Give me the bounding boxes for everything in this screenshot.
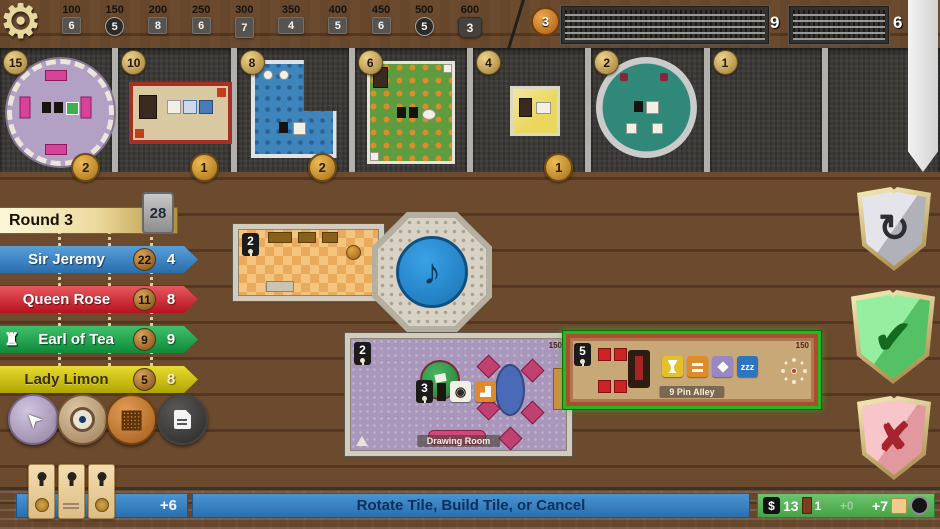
money-coin: 9 [133, 328, 156, 351]
keyhole-icon [248, 249, 253, 254]
market-slot-3[interactable]: 8 2 [237, 48, 349, 172]
bonus-coin: 2 [71, 153, 100, 182]
entrance-arrow [356, 436, 368, 446]
checkmark-icon: ✔ [856, 295, 930, 379]
room-marker: 2 [242, 233, 259, 256]
price-coin: 8 [240, 50, 265, 75]
utility-bonus-icon [475, 381, 496, 402]
view-token-button[interactable] [57, 394, 108, 445]
bowling-pin [614, 348, 627, 361]
chain-link [150, 313, 153, 326]
room-decor [279, 122, 288, 133]
milestone-score: 450 [372, 4, 390, 16]
score-milestone-bar: ⚙ 1006 1505 2008 2506 3007 3504 4005 450… [0, 0, 940, 50]
sleep-bonus-icon: zzz [737, 356, 758, 377]
stack-count: 6 [893, 13, 902, 33]
room-decor [81, 97, 92, 119]
money-coin: 5 [133, 368, 156, 391]
milestone-token: 7 [235, 17, 254, 38]
room-decor [263, 70, 273, 80]
money-icon: $ [763, 497, 780, 514]
player-name: Queen Rose [0, 291, 133, 308]
room-decor [519, 98, 532, 117]
room-decor [20, 97, 31, 119]
price-coin: 10 [121, 50, 146, 75]
eye-icon [70, 407, 95, 432]
bonus-card[interactable] [28, 464, 55, 519]
room-decor [139, 95, 157, 119]
milestone-score: 150 [106, 4, 124, 16]
bowling-pin [598, 380, 611, 393]
bonus-glyph [480, 386, 491, 397]
room-name-plaque: 9 Pin Alley [659, 386, 724, 398]
cancel-button[interactable]: ✘ [857, 396, 931, 480]
chain-link [150, 273, 153, 286]
bonus-coin: 2 [308, 153, 337, 182]
bonus-card-hand [28, 464, 115, 519]
drawing-room-tile: 2 150 3 ◉ Drawing Room [345, 333, 572, 456]
utility-bonus-icon [687, 356, 708, 377]
market-slot-6[interactable]: 2 [591, 48, 703, 172]
market-slot-7[interactable]: 1 [710, 48, 822, 172]
pull-tab-ribbon[interactable] [908, 0, 938, 172]
market-slot-1[interactable]: 15 2 [0, 48, 112, 172]
price-coin: 15 [3, 50, 28, 75]
door-icon [802, 497, 812, 514]
keyhole-icon [67, 472, 76, 481]
room-decor [135, 129, 144, 138]
selected-tile-highlight[interactable]: 5 150 zzz 9 Pin Alley [563, 331, 821, 409]
chain-link [150, 233, 153, 246]
cross-icon: ✘ [862, 401, 926, 475]
bowling-pin [598, 348, 611, 361]
milestone-token: 5 [105, 17, 124, 36]
game-screen: ⚙ 1006 1505 2008 2506 3007 3504 4005 450… [0, 0, 940, 529]
room-draw-stack[interactable] [560, 5, 770, 45]
chair [520, 400, 544, 424]
room-decor [536, 102, 551, 114]
chain-link [58, 233, 61, 246]
money-coin: 11 [133, 288, 156, 311]
bonus-glyph [717, 361, 728, 372]
rotation-handle-icon[interactable] [791, 368, 797, 374]
milestone-token: 6 [62, 17, 81, 34]
castle-grid-token-button[interactable]: ▦ [106, 394, 157, 445]
price-coin: 1 [713, 50, 738, 75]
player-banner-queen-rose[interactable]: Queen Rose 11 8 [0, 286, 198, 313]
action-prompt-bar: Rotate Tile, Build Tile, or Cancel [192, 493, 750, 518]
milestone-score: 100 [62, 4, 80, 16]
hallway-room-tile: 2 [233, 224, 384, 301]
chain-link [58, 273, 61, 286]
room-decor [279, 70, 289, 80]
trophy-bonus-icon [662, 356, 683, 377]
milestone: 2506 [192, 4, 211, 38]
room-decor [370, 152, 379, 161]
room-decor [620, 73, 628, 81]
chain-link [58, 353, 61, 366]
milestone-token: 5 [415, 17, 434, 36]
player-score: 8 [160, 291, 182, 308]
milestone-score: 200 [149, 4, 167, 16]
text-lines-icon [63, 501, 79, 509]
market-slot-4[interactable]: 6 [355, 48, 467, 172]
round-room-tile[interactable] [7, 59, 114, 166]
money-value: 13 [783, 498, 799, 514]
grid-icon: ▦ [120, 407, 144, 432]
room-decor [45, 70, 67, 81]
bonus-glyph [668, 360, 678, 373]
milestone: 6003 [458, 4, 482, 38]
milestone-score: 400 [329, 4, 347, 16]
milestone: 5005 [415, 4, 434, 38]
room-decor [66, 102, 79, 115]
rotate-tile-button[interactable]: ↻ [857, 187, 931, 271]
keyhole-icon [360, 358, 365, 363]
active-player-rook-icon: ♜ [4, 330, 19, 350]
bonus-card[interactable] [88, 464, 115, 519]
corridor-bonus-icon [712, 356, 733, 377]
room-decor [42, 102, 51, 113]
player-score: 4 [160, 251, 182, 268]
stack-texture [793, 10, 885, 40]
milestone-token: 3 [458, 17, 482, 38]
ghost-score-value: +0 [840, 499, 854, 513]
door-icon [437, 383, 446, 401]
l-room-tile[interactable] [251, 60, 337, 158]
action-prompt-text: Rotate Tile, Build Tile, or Cancel [357, 497, 586, 514]
chain-link [150, 353, 153, 366]
room-decor [293, 122, 306, 135]
room-marker: 5 [574, 343, 591, 366]
small-room-tile[interactable] [510, 86, 560, 136]
view-bonus-icon: ◉ [450, 381, 471, 402]
room-decor [54, 102, 63, 113]
keyhole-icon [580, 359, 585, 364]
hall-furniture [298, 232, 316, 243]
room-size-label: 150 [796, 341, 809, 350]
chair [498, 426, 522, 450]
player-score: 9 [160, 331, 182, 348]
hall-furniture [322, 232, 338, 243]
milestone: 2008 [148, 4, 167, 38]
price-coin: 6 [358, 50, 383, 75]
milestone-token: 4 [278, 17, 304, 34]
player-figure [628, 350, 650, 388]
milestone-score: 500 [415, 4, 433, 16]
player-score: 8 [160, 371, 182, 388]
room-bonus-icons: 3 ◉ [416, 380, 496, 403]
bonus-card[interactable] [58, 464, 85, 519]
player-name: Lady Limon [0, 371, 133, 388]
room-draw-stack[interactable] [788, 5, 890, 45]
chain-link [108, 353, 111, 366]
gear-icon[interactable]: ⚙ [0, 0, 41, 48]
room-decor [167, 100, 181, 114]
market-slot-5[interactable]: 4 1 [473, 48, 585, 172]
keyhole-icon [97, 472, 106, 481]
room-marker: 2 [354, 342, 371, 365]
score-delta-value: +7 [872, 498, 888, 514]
note-page-icon [174, 410, 191, 429]
music-note-icon: ♪ [423, 254, 441, 290]
milestone-token: 5 [328, 17, 347, 34]
room-decor [660, 73, 668, 81]
tile-icon [891, 498, 907, 514]
player-name: Sir Jeremy [0, 251, 133, 268]
milestone-token: 6 [372, 17, 391, 34]
room-decor [199, 100, 213, 114]
pointer-token-button[interactable]: ➤ [8, 394, 59, 445]
rotate-icon: ↻ [862, 192, 926, 266]
income-preview-value: +6 [160, 497, 177, 514]
foyer-music-circle: ♪ [396, 236, 468, 308]
milestone-token: 8 [148, 17, 167, 34]
player-banner-lady-limon[interactable]: Lady Limon 5 8 [0, 366, 198, 393]
token-icon [910, 496, 929, 515]
chain-link [108, 273, 111, 286]
room-bonus-icons: zzz [662, 356, 758, 377]
foyer-tile: ♪ [372, 212, 492, 332]
market-slot-2[interactable]: 10 1 [118, 48, 230, 172]
chair [520, 358, 544, 382]
keyhole-icon [422, 396, 427, 401]
room-decor [217, 88, 226, 97]
player-banner-sir-jeremy[interactable]: Sir Jeremy 22 4 [0, 246, 198, 273]
tiles-remaining-counter: 28 [142, 192, 174, 234]
confirm-build-button[interactable]: ✔ [851, 290, 935, 384]
room-name-plaque: Drawing Room [417, 435, 501, 447]
price-coin: 4 [476, 50, 501, 75]
room-decor [45, 144, 67, 155]
milestone: 1006 [62, 4, 81, 38]
chain-link [108, 313, 111, 326]
milestone: 1505 [105, 4, 124, 38]
milestone: 4506 [372, 4, 391, 38]
milestone-token: 6 [192, 17, 211, 34]
room-decor [634, 101, 643, 112]
pointer-icon: ➤ [21, 407, 47, 433]
chain-link [58, 313, 61, 326]
keyhole-bonus: 3 [416, 380, 433, 403]
bonus-glyph [692, 361, 703, 372]
rect-room-tile[interactable] [129, 82, 232, 144]
room-size-label: 150 [549, 341, 562, 350]
player-banner-earl-of-tea[interactable]: ♜ Earl of Tea 9 9 [0, 326, 198, 353]
door-count: 1 [815, 499, 822, 513]
milestone-score: 250 [192, 4, 210, 16]
milestone: 4005 [328, 4, 347, 38]
room-decor [646, 101, 659, 114]
build-summary-bar: $ 13 1 +0 +7 [757, 493, 935, 518]
room-decor [183, 100, 197, 114]
player-name: Earl of Tea [19, 331, 133, 348]
bonus-coin: 1 [190, 153, 219, 182]
divider [505, 0, 525, 55]
tile-market: 15 2 10 1 8 [0, 48, 940, 172]
nine-pin-alley-tile[interactable]: 5 150 zzz 9 Pin Alley [566, 334, 818, 406]
stack-count: 9 [770, 13, 779, 33]
coin-icon [35, 498, 49, 512]
hall-bench [266, 281, 294, 292]
garden-room-tile[interactable] [367, 61, 455, 164]
stack-texture [565, 10, 765, 40]
chain-link [108, 233, 111, 246]
notes-token-button[interactable] [157, 394, 208, 445]
keyhole-icon [37, 472, 46, 481]
bowling-pin [614, 380, 627, 393]
favor-token: 3 [531, 7, 560, 36]
milestone-score: 300 [235, 4, 253, 16]
coin-icon [95, 498, 109, 512]
room-decor [443, 64, 452, 73]
milestone-score: 350 [282, 4, 300, 16]
gold-door-marker [346, 245, 361, 260]
money-coin: 22 [133, 248, 156, 271]
milestone-score: 600 [461, 4, 479, 16]
room-decor [626, 123, 637, 134]
bonus-coin: 1 [544, 153, 573, 182]
hall-furniture [268, 232, 292, 243]
milestone: 3504 [278, 4, 304, 38]
room-decor [397, 107, 406, 118]
room-decor [409, 107, 418, 118]
milestone-track: 1006 1505 2008 2506 3007 3504 4005 4506 … [62, 4, 482, 38]
room-decor [422, 109, 436, 120]
milestone: 3007 [235, 4, 254, 38]
room-decor [652, 123, 663, 134]
